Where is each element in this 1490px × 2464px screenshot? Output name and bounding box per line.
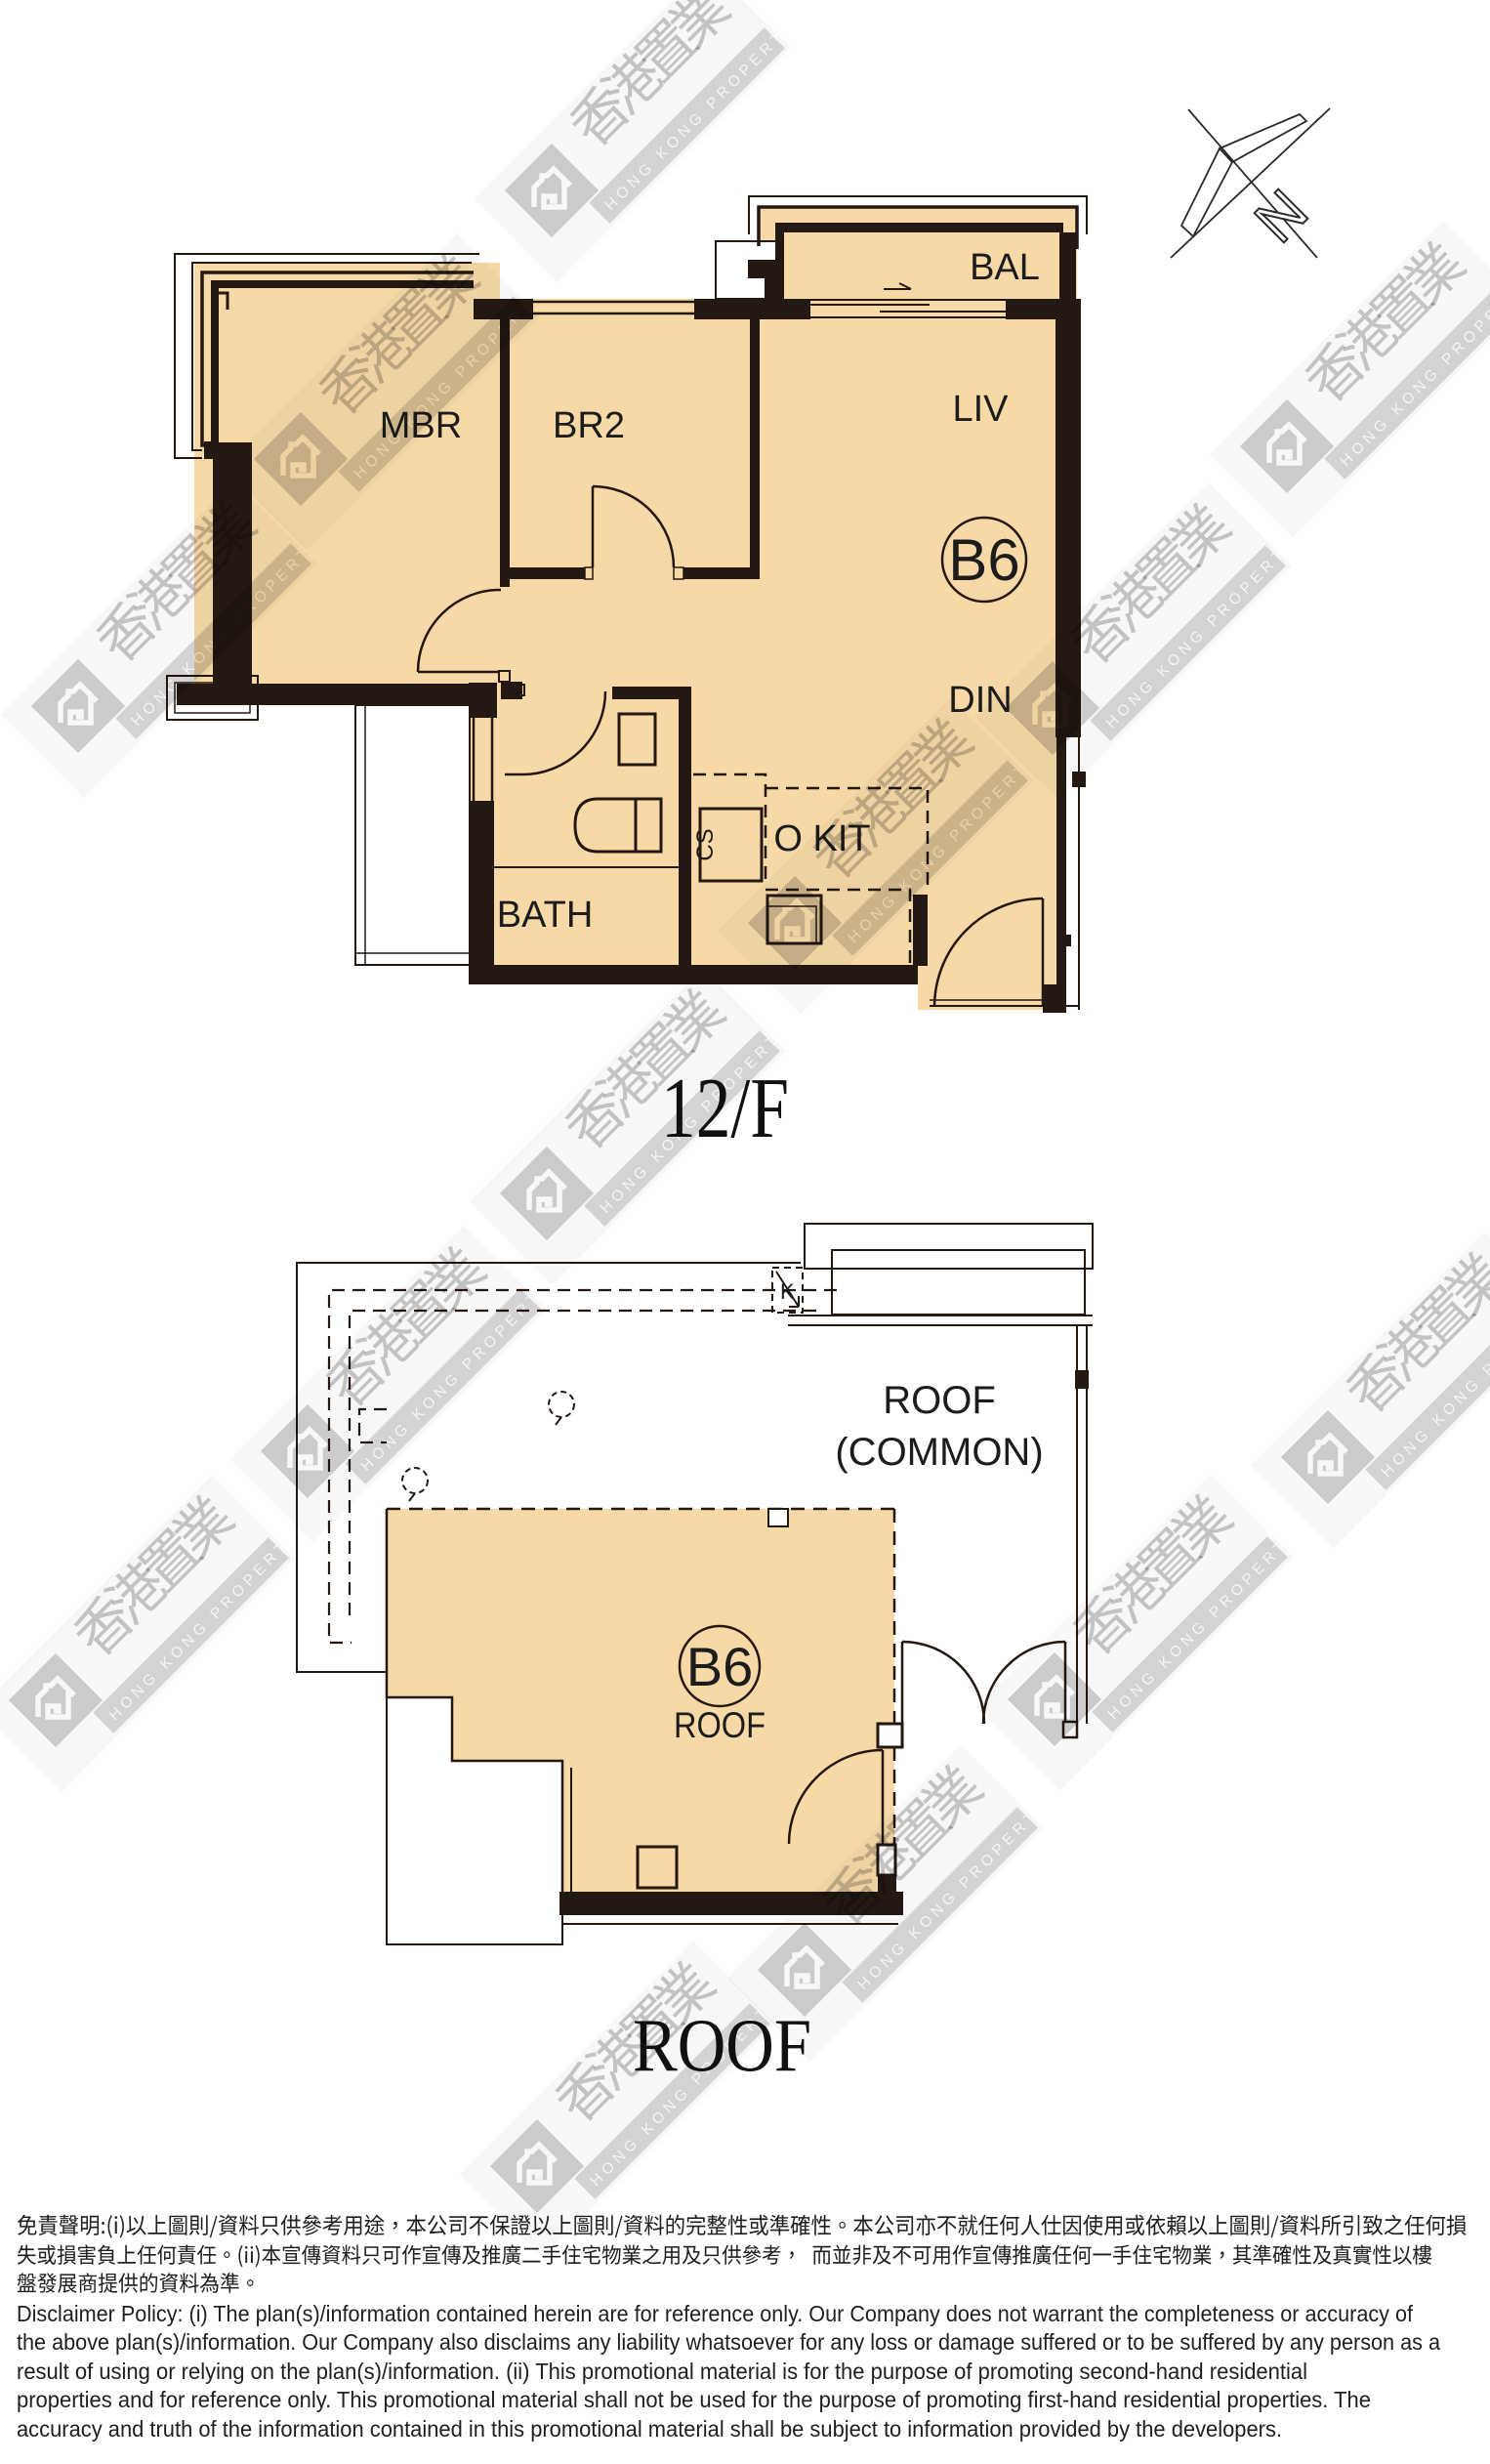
svg-text:the above plan(s)/information.: the above plan(s)/information. Our Compa… <box>17 2329 1440 2355</box>
svg-text:LIV: LIV <box>952 389 1009 430</box>
svg-text:BAL: BAL <box>970 247 1040 288</box>
svg-text:B6: B6 <box>686 1636 754 1697</box>
svg-text:CS: CS <box>692 828 719 860</box>
svg-text:result of using or relying on: result of using or relying on the plan(s… <box>17 2359 1307 2384</box>
svg-text:ROOF: ROOF <box>674 1705 766 1745</box>
svg-text:B6: B6 <box>948 527 1019 593</box>
svg-text:K: K <box>780 1279 795 1304</box>
svg-text:ROOF: ROOF <box>883 1379 996 1422</box>
svg-text:BATH: BATH <box>497 895 594 936</box>
svg-text:(COMMON): (COMMON) <box>835 1431 1043 1474</box>
svg-text:properties and for reference o: properties and for reference only. This … <box>17 2387 1371 2412</box>
svg-text:BR2: BR2 <box>553 405 625 446</box>
svg-text:accuracy and truth of the info: accuracy and truth of the information co… <box>17 2416 1282 2442</box>
svg-text:Disclaimer Policy: (i) The pla: Disclaimer Policy: (i) The plan(s)/infor… <box>17 2301 1413 2326</box>
